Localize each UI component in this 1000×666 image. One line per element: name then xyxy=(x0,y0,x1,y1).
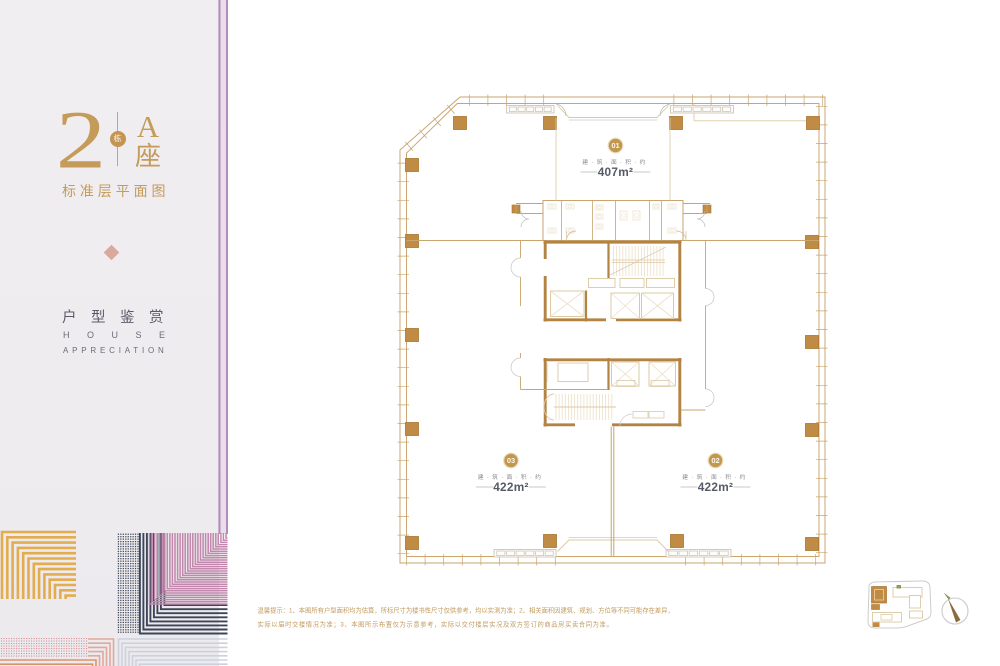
svg-text:01: 01 xyxy=(611,141,619,150)
svg-text:实际以届时交楼情况为准；3、本图所示布置仅为示意参考，实际以: 实际以届时交楼情况为准；3、本图所示布置仅为示意参考，实际以交付楼层实况及双方签… xyxy=(258,620,614,629)
svg-text:02: 02 xyxy=(711,456,719,465)
svg-text:422m²: 422m² xyxy=(698,480,734,494)
svg-text:03: 03 xyxy=(507,456,515,465)
svg-text:407m²: 407m² xyxy=(598,165,634,179)
svg-text:422m²: 422m² xyxy=(493,480,529,494)
svg-text:温馨提示：1、本图所有户型面积均为估算，所标尺寸为楼书性尺寸: 温馨提示：1、本图所有户型面积均为估算，所标尺寸为楼书性尺寸仅供参考，均以实测为… xyxy=(258,606,674,615)
